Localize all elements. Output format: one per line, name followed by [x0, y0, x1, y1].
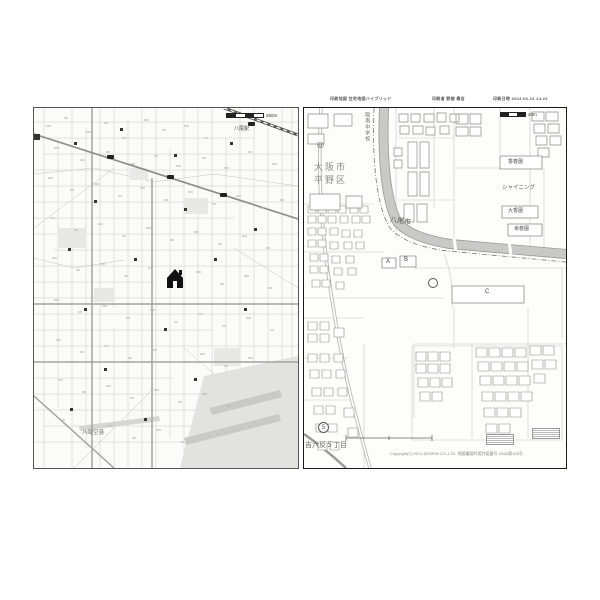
- station-label: 八尾駅: [234, 127, 249, 132]
- district-label: 吉六反５丁目: [305, 442, 347, 449]
- header-map-info: 印刷地図 住宅地図ハイブリッド: [330, 96, 392, 102]
- right-map-panel: 阪南中学校 ◎ 大阪市 平野区 八尾市 香春園 シャイニング 大香園 幸春園 A…: [303, 107, 567, 469]
- school-circle-icon: ·: [428, 278, 438, 288]
- print-preview-page: 印刷地図 住宅地図ハイブリッド 印刷者 野間 春吉 印刷日時 2024.06.2…: [0, 0, 600, 600]
- map-block-patches: [58, 168, 240, 366]
- houses-left-mid: [308, 206, 370, 289]
- city-label: 大阪市: [314, 163, 347, 172]
- station-box: [248, 122, 255, 126]
- header-printer-info: 印刷者 野間 春吉: [432, 96, 465, 102]
- scale-segments: [500, 112, 526, 117]
- scale-seg: [227, 114, 236, 117]
- city-office-icon: ◎: [317, 141, 324, 149]
- scale-label: 20m: [528, 112, 537, 117]
- airport-area: [180, 356, 298, 468]
- left-map-canvas: [34, 108, 298, 468]
- scale-seg: [501, 113, 509, 116]
- bottom-road: [304, 434, 346, 468]
- houses-bottom-right: [416, 346, 556, 433]
- scale-label: 250m: [266, 113, 277, 118]
- garden-top-label: 香春園: [508, 160, 523, 165]
- shining-label: シャイニング: [502, 186, 535, 192]
- airport-label: 八尾空港: [82, 431, 104, 437]
- houses-center-apartments: [394, 142, 429, 222]
- home-marker-icon: [167, 269, 183, 288]
- houses-bottom-left: [308, 322, 358, 450]
- header-datetime-info: 印刷日時 2024.06.24 14:22: [493, 96, 548, 102]
- garden-bottom-label: 幸春園: [514, 227, 529, 232]
- copyright-line: Copyright(C) 2013 ZENRIN CO.,LTD. 地図複製利用…: [390, 452, 523, 456]
- scale-seg: [509, 113, 517, 116]
- station-box: [220, 193, 227, 197]
- rail-line: [34, 134, 298, 219]
- garden-buildings: [500, 156, 542, 236]
- left-scale-bar: 250m: [226, 113, 277, 118]
- scale-seg: [517, 113, 525, 116]
- building-b-label: B: [404, 257, 408, 263]
- ward-label: 平野区: [314, 176, 347, 185]
- circled-number: 5: [318, 422, 329, 433]
- map-annotation-box: [532, 428, 560, 439]
- garden-mid-label: 大香園: [508, 209, 523, 214]
- scale-seg: [236, 114, 245, 117]
- scale-seg: [245, 114, 254, 117]
- map-annotation-box: [486, 434, 514, 445]
- building-c-label: C: [485, 289, 489, 295]
- right-scale-bar: 20m: [500, 112, 537, 117]
- runway-strip: [79, 416, 160, 431]
- school-label-vertical: 阪南中学校: [364, 112, 369, 176]
- station-box: [107, 155, 114, 159]
- building-a-label: A: [386, 259, 390, 265]
- scale-segments: [226, 113, 264, 118]
- scale-seg: [254, 114, 263, 117]
- station-box: [167, 175, 174, 179]
- left-map-panel: 八尾駅 八尾空港 250m: [33, 107, 299, 469]
